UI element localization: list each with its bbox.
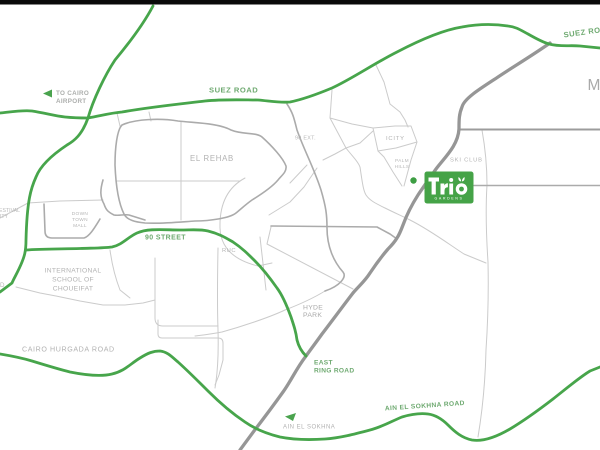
- svg-text:90 EXT.: 90 EXT.: [295, 136, 316, 142]
- svg-text:MADINATY: MADINATY: [588, 77, 600, 94]
- svg-text:AIRPORT: AIRPORT: [56, 98, 86, 105]
- svg-text:AIN EL SOKHNA: AIN EL SOKHNA: [283, 425, 335, 431]
- svg-text:GARDENS: GARDENS: [435, 197, 464, 201]
- svg-text:D: D: [0, 282, 5, 289]
- svg-text:ICITY: ICITY: [386, 136, 405, 142]
- svg-text:PARK: PARK: [303, 312, 322, 319]
- svg-text:CITY: CITY: [0, 214, 9, 220]
- svg-text:EL REHAB: EL REHAB: [190, 154, 234, 163]
- svg-text:CAIRO HURGADA ROAD: CAIRO HURGADA ROAD: [22, 346, 115, 354]
- svg-text:RUC: RUC: [222, 248, 236, 254]
- svg-text:TO CAIRO: TO CAIRO: [56, 90, 89, 97]
- svg-text:HILLS: HILLS: [395, 164, 410, 170]
- svg-text:TOWN: TOWN: [72, 217, 88, 223]
- svg-text:EAST: EAST: [314, 360, 333, 367]
- svg-text:HYDE: HYDE: [303, 305, 323, 312]
- svg-text:SUEZ ROAD: SUEZ ROAD: [209, 86, 258, 95]
- svg-text:SCHOOL OF: SCHOOL OF: [52, 277, 94, 284]
- svg-text:PALM: PALM: [395, 158, 409, 164]
- svg-text:RING ROAD: RING ROAD: [314, 368, 354, 375]
- svg-text:MALL: MALL: [73, 223, 87, 229]
- svg-text:CHOUEIFAT: CHOUEIFAT: [53, 286, 93, 293]
- svg-text:INTERNATIONAL: INTERNATIONAL: [45, 268, 102, 275]
- svg-text:DOWN: DOWN: [72, 211, 89, 217]
- svg-text:SKI CLUB: SKI CLUB: [450, 158, 483, 164]
- svg-text:90 STREET: 90 STREET: [145, 235, 186, 242]
